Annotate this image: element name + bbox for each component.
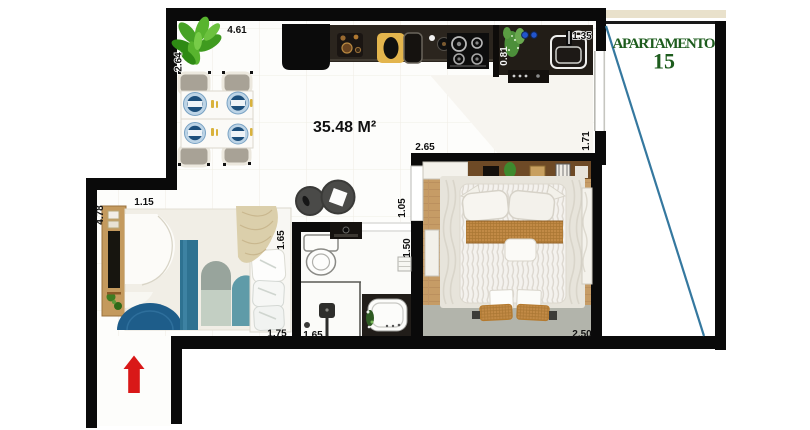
svg-text:15: 15 — [653, 49, 675, 74]
svg-text:2.65: 2.65 — [415, 142, 435, 153]
svg-text:1.35: 1.35 — [572, 31, 592, 42]
svg-text:1.15: 1.15 — [134, 197, 154, 208]
svg-text:2.64: 2.64 — [174, 52, 185, 72]
svg-text:4.78: 4.78 — [95, 205, 106, 225]
svg-text:4.61: 4.61 — [227, 25, 247, 36]
svg-text:1.05: 1.05 — [397, 198, 408, 218]
svg-text:1.71: 1.71 — [581, 131, 592, 151]
svg-text:1.65: 1.65 — [276, 230, 287, 250]
svg-text:35.48 M²: 35.48 M² — [313, 119, 376, 136]
svg-text:2.50: 2.50 — [572, 329, 592, 340]
svg-text:1.50: 1.50 — [402, 238, 413, 258]
svg-text:1.75: 1.75 — [267, 329, 287, 340]
svg-text:0.81: 0.81 — [499, 46, 510, 66]
svg-text:1.65: 1.65 — [303, 330, 323, 341]
